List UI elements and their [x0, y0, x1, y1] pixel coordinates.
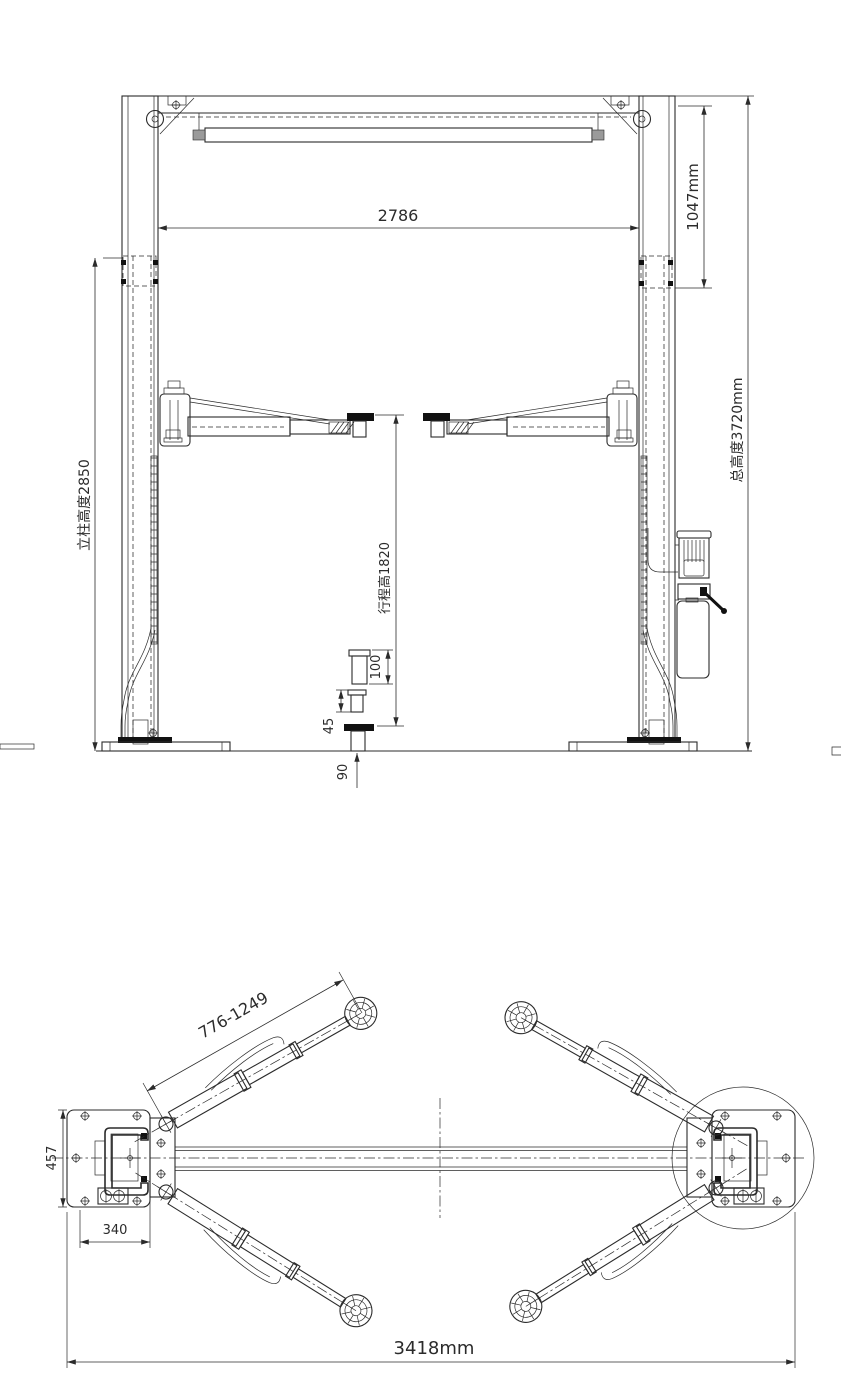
dim-adapter-mid-label: 45 — [322, 718, 337, 735]
right-column — [627, 96, 681, 744]
left-column — [118, 96, 172, 744]
dim-adapter-tall-label: 100 — [369, 655, 384, 680]
dim-pad-min-label: 90 — [336, 764, 351, 781]
dimension-3418: 3418mm — [67, 1212, 795, 1368]
left-base-plate — [102, 742, 230, 751]
drawing-page: 2786 1047mm 立柱高度2850 总高度3720mm 行程高1820 1… — [0, 0, 841, 1380]
arm-rear-left — [123, 1159, 378, 1338]
dimension-1047: 1047mm — [675, 106, 712, 288]
plan-view: 776-1249 457 340 3418mm — [45, 972, 814, 1368]
dimension-2850: 立柱高度2850 — [76, 258, 123, 751]
dim-base-width-label: 340 — [103, 1223, 128, 1238]
dim-top-clearance-label: 1047mm — [684, 163, 702, 230]
power-unit — [648, 528, 727, 678]
dim-arm-reach-label: 776-1249 — [195, 988, 271, 1043]
cross-rails — [175, 1147, 687, 1171]
dimension-90: 90 — [336, 753, 357, 788]
plan-centerlines — [52, 1098, 806, 1218]
dimension-100: 100 — [369, 650, 393, 684]
left-carriage-arm — [160, 381, 374, 446]
dimension-457: 457 — [45, 1110, 67, 1207]
right-column-base — [687, 1110, 795, 1207]
right-carriage-arm — [423, 381, 637, 446]
dim-span-label: 2786 — [378, 206, 419, 225]
dim-overall-height-label: 总高度3720mm — [729, 378, 746, 483]
front-view: 2786 1047mm 立柱高度2850 总高度3720mm 行程高1820 1… — [0, 96, 841, 788]
arm-front-right — [499, 990, 758, 1160]
two-post-lift-drawing: 2786 1047mm 立柱高度2850 总高度3720mm 行程高1820 1… — [0, 0, 841, 1380]
floor-line — [0, 744, 841, 755]
dim-base-depth-label: 457 — [45, 1146, 60, 1171]
dim-overall-width-label: 3418mm — [394, 1338, 475, 1359]
right-base-plate — [569, 742, 697, 751]
dim-column-height-label: 立柱高度2850 — [76, 459, 93, 551]
dimension-2786: 2786 — [158, 206, 639, 228]
dimension-776-1249: 776-1249 — [143, 972, 362, 1124]
arm-rear-right — [504, 1155, 759, 1334]
dim-stroke-height-label: 行程高1820 — [377, 542, 393, 614]
